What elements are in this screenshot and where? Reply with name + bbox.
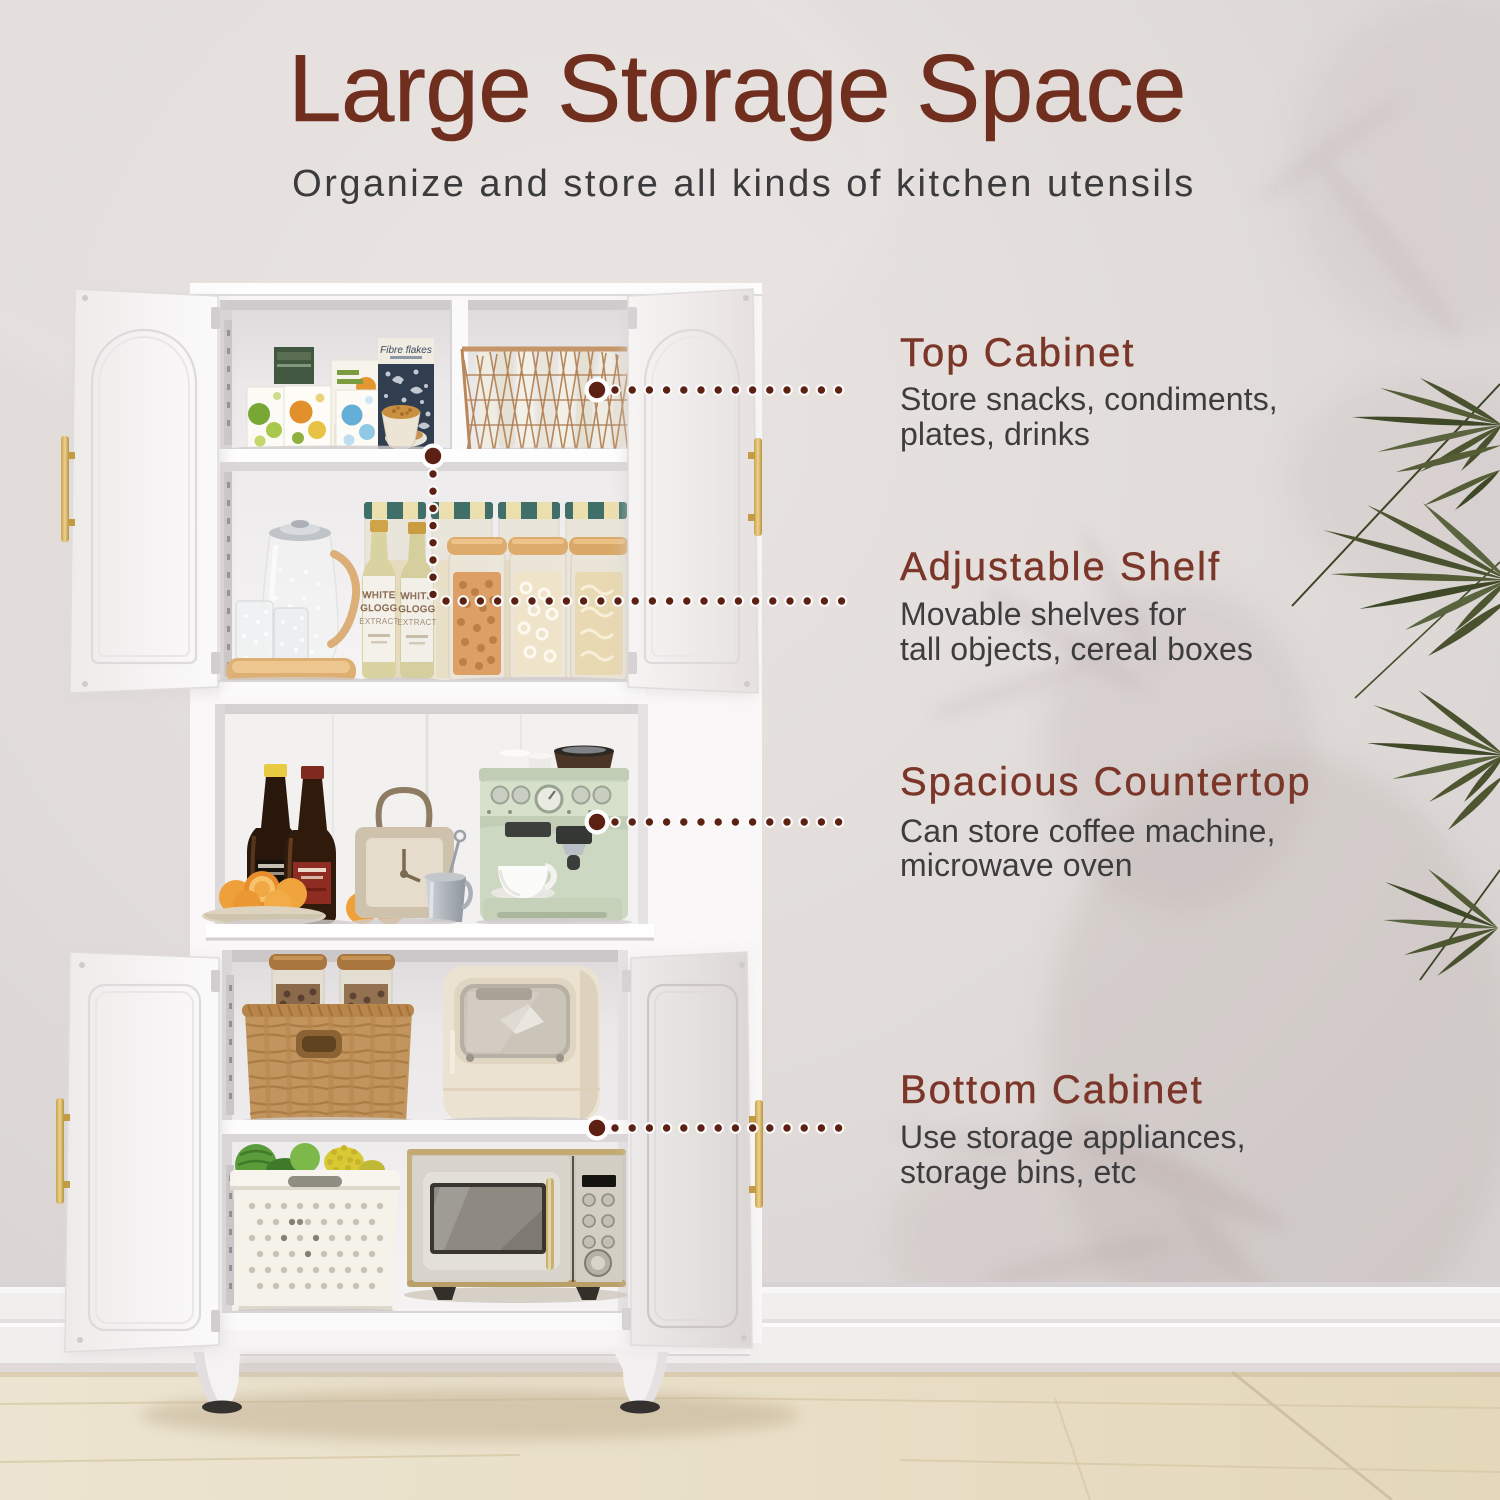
svg-text:Organize and store all kinds o: Organize and store all kinds of kitchen … (292, 163, 1196, 205)
svg-text:GLOGG: GLOGG (398, 604, 435, 615)
svg-text:Large Storage Space: Large Storage Space (288, 35, 1186, 142)
svg-text:microwave oven: microwave oven (900, 847, 1133, 883)
svg-text:WHITE: WHITE (362, 590, 395, 601)
svg-text:Movable shelves for: Movable shelves for (900, 596, 1187, 632)
svg-text:Fibre flakes: Fibre flakes (380, 345, 432, 356)
svg-text:plates, drinks: plates, drinks (900, 416, 1090, 452)
svg-text:Bottom Cabinet: Bottom Cabinet (900, 1068, 1204, 1112)
svg-text:Use storage appliances,: Use storage appliances, (900, 1119, 1246, 1155)
svg-text:tall objects, cereal boxes: tall objects, cereal boxes (900, 631, 1253, 667)
svg-text:Spacious Countertop: Spacious Countertop (900, 760, 1312, 804)
svg-text:Can store coffee machine,: Can store coffee machine, (900, 813, 1275, 849)
svg-text:Adjustable Shelf: Adjustable Shelf (900, 545, 1221, 589)
svg-text:GLOGG: GLOGG (360, 603, 397, 614)
svg-text:Top Cabinet: Top Cabinet (900, 331, 1135, 375)
svg-text:Store snacks, condiments,: Store snacks, condiments, (900, 381, 1278, 417)
svg-text:EXTRACT: EXTRACT (397, 618, 436, 627)
svg-text:storage bins, etc: storage bins, etc (900, 1154, 1137, 1190)
svg-text:EXTRACT: EXTRACT (359, 617, 398, 626)
